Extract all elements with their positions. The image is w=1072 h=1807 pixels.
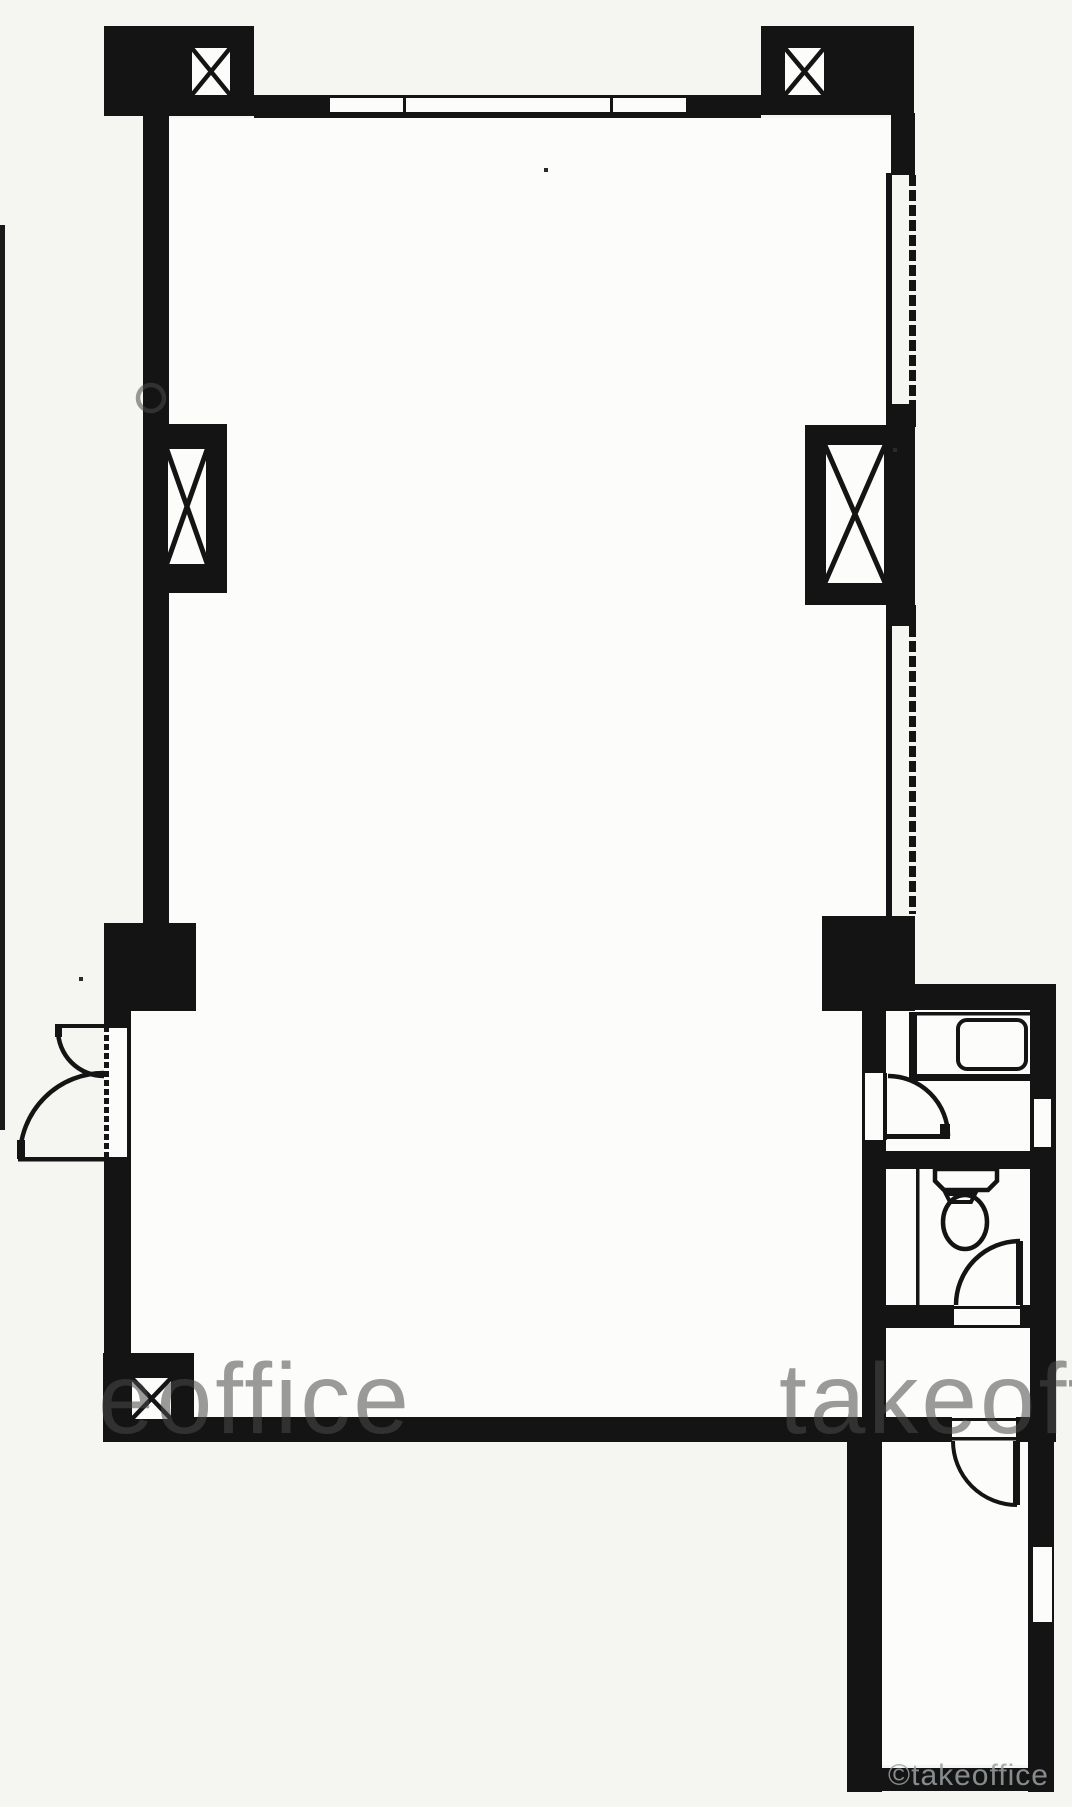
svg-text:takeoffice: takeoffice [779,1343,1072,1455]
svg-text:eoffice: eoffice [98,1343,412,1455]
svg-text:©takeoffice: ©takeoffice [888,1759,1049,1792]
